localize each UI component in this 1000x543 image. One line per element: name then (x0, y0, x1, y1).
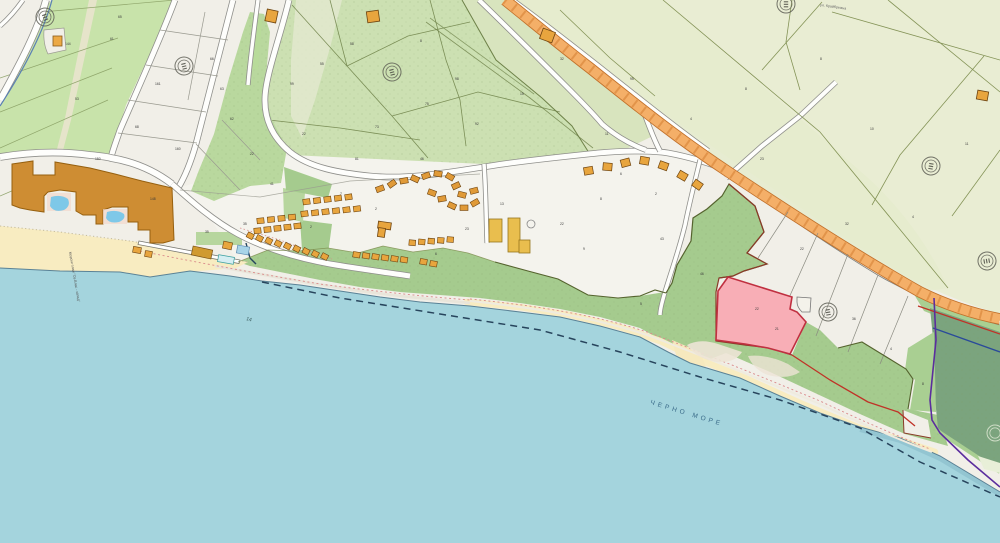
svg-text:65: 65 (118, 15, 122, 19)
svg-text:150: 150 (95, 157, 101, 161)
svg-text:2: 2 (655, 192, 657, 196)
svg-text:4: 4 (890, 347, 892, 351)
svg-text:46: 46 (700, 272, 704, 276)
svg-text:23: 23 (465, 227, 469, 231)
svg-text:10: 10 (870, 127, 874, 131)
svg-text:6: 6 (435, 252, 437, 256)
svg-text:53: 53 (75, 97, 79, 101)
svg-text:62: 62 (230, 117, 234, 121)
svg-text:15: 15 (520, 92, 524, 96)
svg-text:8: 8 (420, 39, 422, 43)
svg-text:22: 22 (560, 222, 564, 226)
svg-text:35: 35 (243, 222, 247, 226)
svg-text:8: 8 (745, 87, 747, 91)
svg-text:95: 95 (630, 77, 634, 81)
svg-text:32: 32 (560, 57, 564, 61)
svg-text:8: 8 (922, 382, 924, 386)
svg-text:41: 41 (270, 182, 274, 186)
svg-text:55: 55 (320, 62, 324, 66)
svg-text:2: 2 (310, 225, 312, 229)
svg-text:9: 9 (583, 247, 585, 251)
svg-text:7: 7 (340, 192, 342, 196)
svg-text:22: 22 (800, 247, 804, 251)
svg-text:11: 11 (605, 132, 609, 136)
svg-text:36: 36 (852, 317, 856, 321)
svg-text:22: 22 (755, 307, 759, 311)
svg-text:98: 98 (455, 77, 459, 81)
svg-text:92: 92 (475, 122, 479, 126)
svg-text:4: 4 (690, 117, 692, 121)
svg-text:4: 4 (912, 215, 914, 219)
svg-text:6: 6 (620, 172, 622, 176)
svg-text:161: 161 (155, 82, 161, 86)
svg-text:5: 5 (640, 302, 642, 306)
svg-text:13: 13 (500, 202, 504, 206)
svg-text:8: 8 (820, 57, 822, 61)
svg-text:99: 99 (290, 82, 294, 86)
svg-text:81: 81 (355, 157, 359, 161)
svg-text:43: 43 (660, 237, 664, 241)
svg-text:46: 46 (420, 157, 424, 161)
svg-text:75: 75 (425, 102, 429, 106)
svg-text:58: 58 (350, 42, 354, 46)
svg-text:160: 160 (175, 147, 181, 151)
svg-text:11: 11 (965, 142, 969, 146)
svg-text:73: 73 (375, 125, 379, 129)
svg-text:22: 22 (302, 132, 306, 136)
svg-text:32: 32 (845, 222, 849, 226)
svg-text:148: 148 (150, 197, 156, 201)
svg-text:35: 35 (205, 230, 209, 234)
svg-text:68: 68 (135, 125, 139, 129)
svg-text:61: 61 (110, 37, 114, 41)
svg-text:23: 23 (760, 157, 764, 161)
svg-text:21: 21 (775, 327, 779, 331)
svg-text:66: 66 (210, 57, 214, 61)
svg-text:8: 8 (600, 197, 602, 201)
svg-text:2: 2 (375, 207, 377, 211)
svg-text:22: 22 (250, 152, 254, 156)
svg-text:63: 63 (220, 87, 224, 91)
